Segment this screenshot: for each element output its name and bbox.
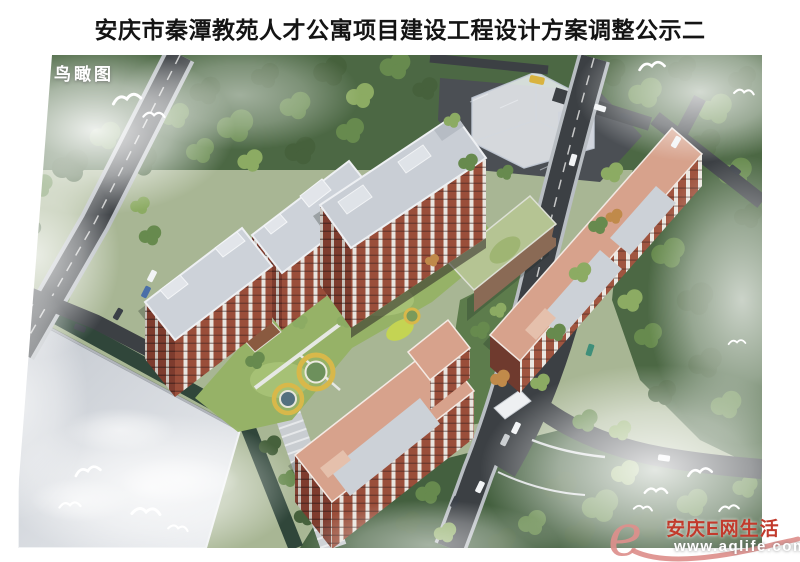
notice-page: 安庆市秦潭教苑人才公寓项目建设工程设计方案调整公示二 bbox=[0, 0, 800, 562]
aerial-render-graphic bbox=[18, 55, 762, 548]
aerial-render: 鸟瞰图 bbox=[18, 55, 762, 548]
page-title: 安庆市秦潭教苑人才公寓项目建设工程设计方案调整公示二 bbox=[95, 11, 706, 45]
title-bar: 安庆市秦潭教苑人才公寓项目建设工程设计方案调整公示二 bbox=[0, 0, 800, 55]
view-label: 鸟瞰图 bbox=[54, 60, 114, 85]
